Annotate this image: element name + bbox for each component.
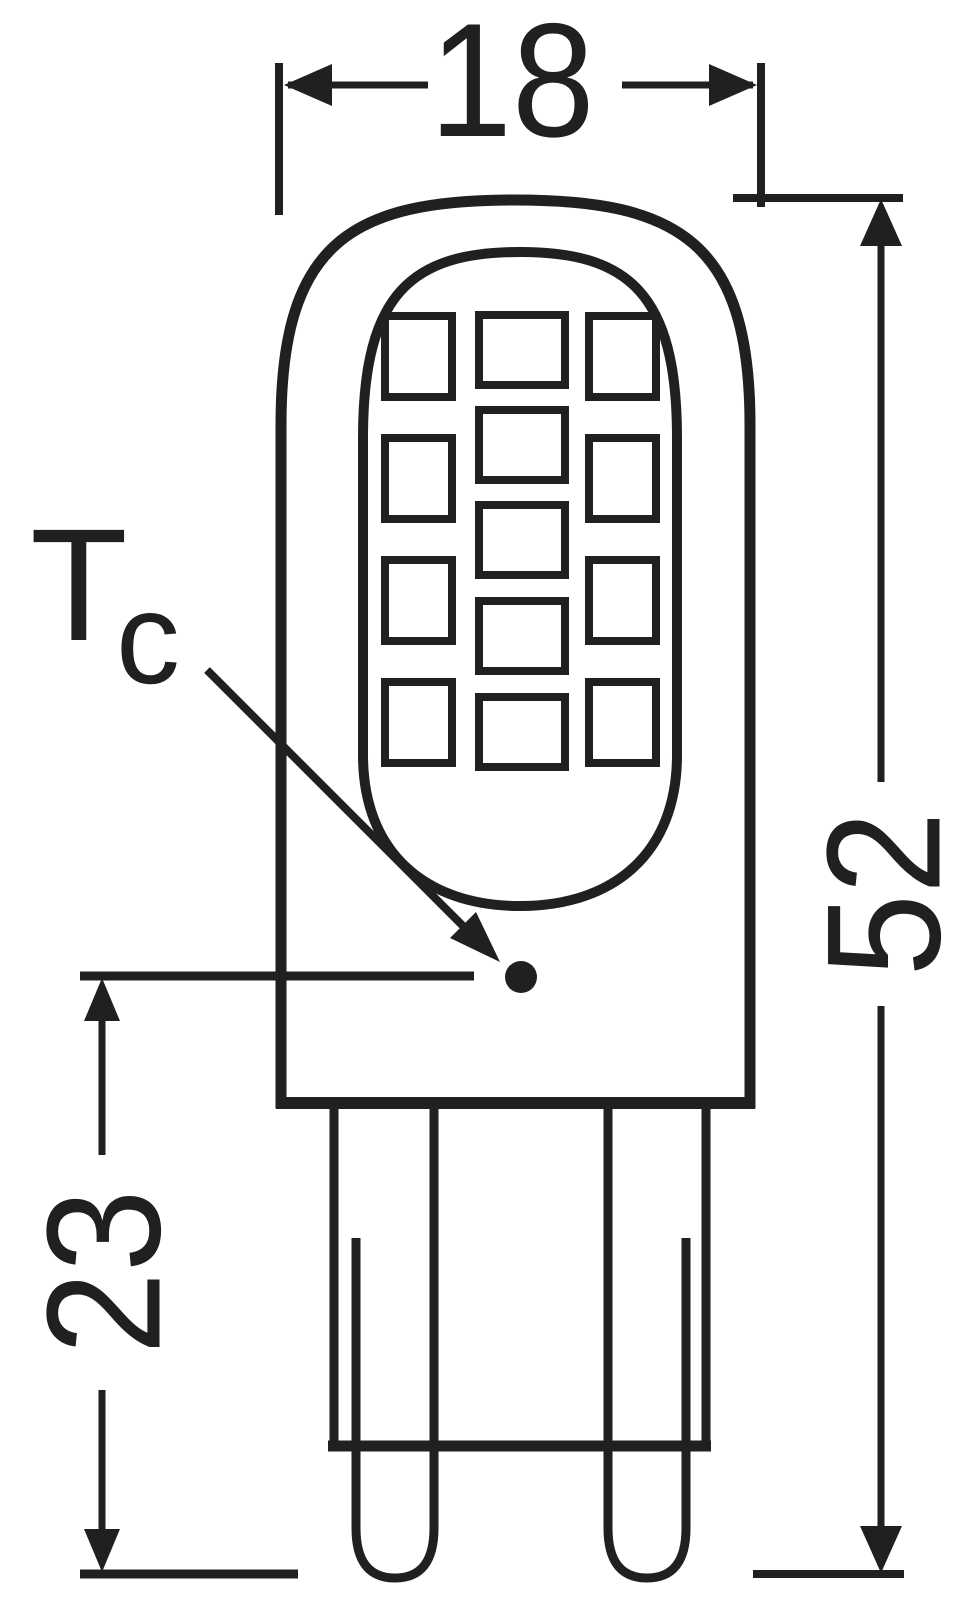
led-chip [479,315,565,385]
led-chip [385,438,452,519]
arrowhead-left-icon [284,64,332,106]
led-chip [479,697,565,767]
dimension-width-18: 18 [279,0,761,215]
dimension-value-overall-height: 52 [794,812,970,977]
arrowhead-up-icon [84,978,120,1021]
dimension-base-23: 23 [14,976,475,1574]
tc-measurement-point [505,961,537,993]
led-chip [479,505,565,575]
led-chip [479,601,565,671]
led-chip [589,560,656,641]
tc-label-subscript: c [116,565,180,711]
dimension-drawing-canvas: 18 52 23 T c [0,0,970,1600]
pin-left [356,1109,434,1578]
led-chip [385,682,452,763]
led-chip [479,410,565,480]
arrowhead-down-icon [84,1529,120,1572]
arrowhead-right-icon [709,64,757,106]
pin-right [608,1109,686,1578]
led-chip [589,682,656,763]
tc-label: T [30,495,128,674]
led-chip [385,316,452,397]
dimension-value-width: 18 [430,0,595,171]
arrowhead-down-icon [860,1526,902,1573]
lamp-base-group [328,1107,711,1578]
dimension-value-base-height: 23 [14,1190,195,1355]
tc-leader-line [207,670,480,943]
lamp-dimension-drawing: 18 52 23 T c [0,0,970,1600]
dimension-height-52: 52 [733,198,970,1574]
led-chip [385,560,452,641]
arrowhead-up-icon [860,199,902,246]
led-chip-grid [385,315,656,767]
led-chip [589,316,656,397]
led-chip [589,438,656,519]
